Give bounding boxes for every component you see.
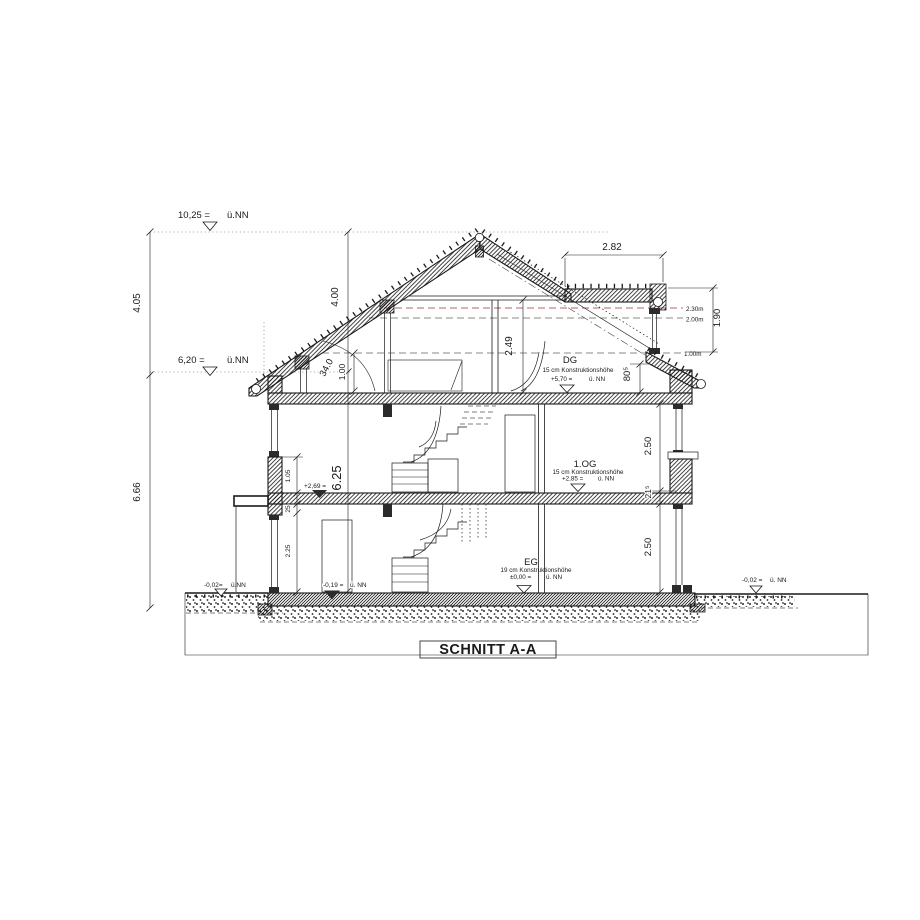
eg-construction: 19 cm Konstruktionshöhe: [500, 567, 572, 574]
dim-roof-zone: 4.05: [132, 293, 143, 313]
eave-level-value: 6,20 =: [178, 355, 205, 366]
eave-level-icon: [203, 367, 217, 376]
dim-dg-clear: 2.49: [504, 336, 515, 356]
headroom-200: 2.00m: [686, 317, 704, 324]
elevation-markers: [203, 222, 762, 600]
dimension-lines: [147, 229, 719, 612]
ridge-level-icon: [203, 222, 217, 231]
dim-og-clear: 2.50: [643, 437, 654, 456]
entry-level-value: -0,19 =: [323, 582, 344, 589]
terrace-gutter-icon: [654, 298, 663, 307]
right-gutter-icon: [697, 380, 706, 389]
ridge-level-value: 10,25 =: [178, 210, 210, 221]
purlin-right: [380, 300, 394, 313]
ridge-cap-icon: [475, 233, 483, 241]
eg-stair: [392, 504, 486, 592]
ground-left-datum: ü.NN: [231, 582, 246, 589]
og-slab: [268, 493, 692, 504]
eg-level: ±0,00 =: [510, 574, 531, 581]
dg-construction: 15 cm Konstruktionshöhe: [542, 367, 614, 374]
canopy-level-value: +2,69 =: [304, 483, 326, 490]
og-level: +2,85 =: [562, 476, 584, 483]
dim-terrace-height: 1.90: [712, 309, 723, 328]
dg-label: DG: [563, 355, 577, 366]
og-level-datum: ü. NN: [598, 476, 615, 483]
og-level-icon: [571, 484, 585, 492]
eg-level-icon: [517, 586, 531, 594]
entry-level-datum: ü. NN: [350, 582, 367, 589]
drawing-title: SCHNITT A-A: [439, 642, 537, 658]
purlin-left: [295, 356, 309, 369]
dim-slab: 21⁵: [643, 486, 653, 499]
roof-pitch-angle: 34.0: [318, 357, 336, 378]
dim-terrace-width: 2.82: [602, 242, 622, 253]
dim-body-height: 6.66: [132, 482, 143, 502]
dg-level-icon: [560, 385, 574, 393]
dim-drempel: 80⁵: [622, 367, 633, 382]
dim-upper-chain: 4.00: [330, 287, 341, 307]
ground-right-level-icon: [750, 586, 762, 593]
og-interior: [383, 404, 545, 493]
attic-slab: [268, 393, 692, 404]
terrace-glazing: [649, 308, 660, 354]
headroom-230: 2.30m: [686, 306, 704, 313]
eg-level-datum: ü. NN: [546, 574, 563, 581]
dim-door: 2.25: [285, 544, 292, 557]
ridge-level-datum: ü.NN: [227, 210, 249, 221]
dim-parapet: 1.05: [285, 469, 292, 482]
section-drawing: 10,25 = ü.NN 6,20 = ü.NN -0,02= ü.NN -0,…: [0, 0, 920, 920]
left-wall: [268, 376, 282, 593]
dg-level-datum: ü. NN: [589, 376, 606, 383]
canopy: [234, 496, 268, 592]
headroom-100: 1.00m: [684, 351, 702, 358]
dim-shell-height: 6.25: [329, 465, 344, 490]
dg-level: +5,70 =: [551, 376, 573, 383]
left-gutter-icon: [252, 385, 261, 394]
og-stair: [392, 406, 496, 492]
ground-right-datum: ü. NN: [770, 577, 787, 584]
dim-knee-height: 1.00: [337, 363, 347, 380]
og-door: [505, 415, 535, 492]
dim-eg-clear: 2.50: [643, 538, 654, 557]
dim-lintel: 25: [285, 505, 292, 513]
ground-left-value: -0,02=: [204, 582, 223, 589]
ground-right-value: -0,02 =: [742, 577, 763, 584]
title-block: SCHNITT A-A: [420, 641, 556, 658]
eave-level-datum: ü.NN: [227, 355, 249, 366]
section-drawing-sheet: 10,25 = ü.NN 6,20 = ü.NN -0,02= ü.NN -0,…: [0, 0, 920, 920]
